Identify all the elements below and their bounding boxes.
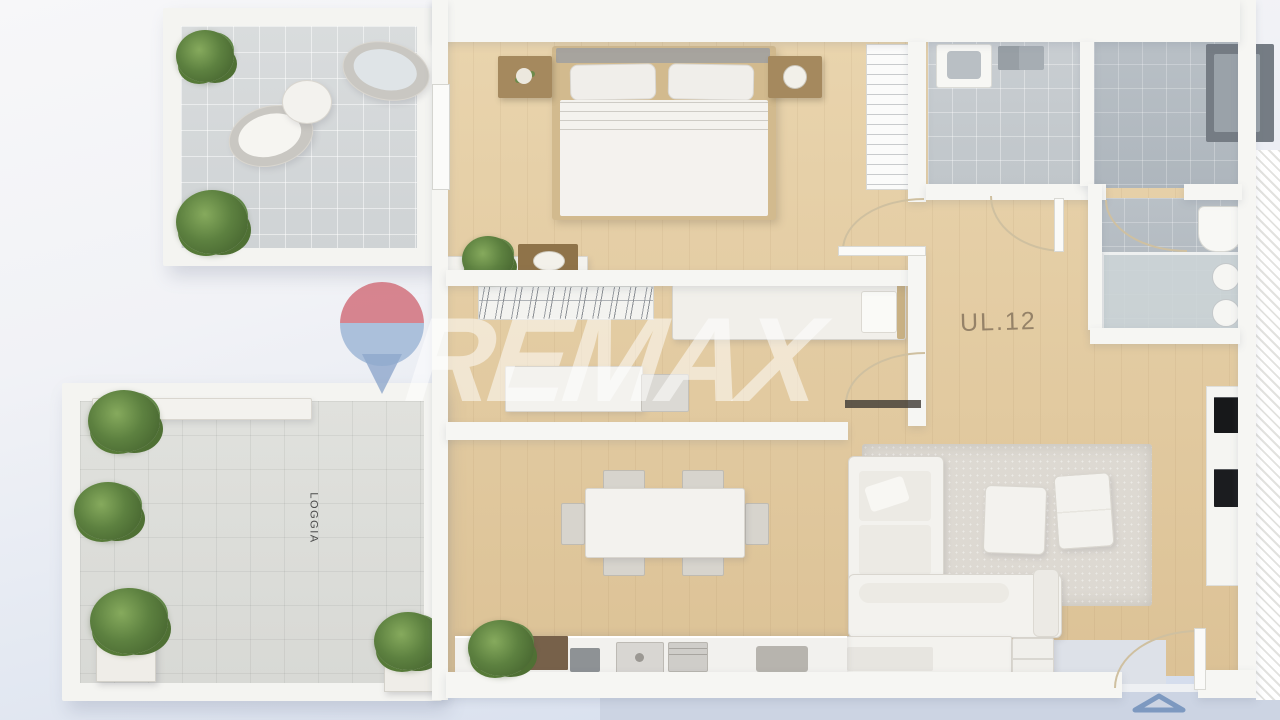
double-washbasin-vanity [1102,252,1242,335]
bedroom-window [432,84,450,190]
nightstand-right [768,56,822,98]
sofa-seat [848,574,1062,638]
sink-faucet [635,653,644,662]
hatched-boundary [1256,150,1280,700]
washbasin [936,44,992,88]
single-bed-pillow [861,291,897,333]
kitchen-sink [616,642,664,674]
kitchen-plant [468,620,534,676]
terrace-plant-top [176,30,234,82]
toilet-cistern [998,46,1044,70]
terrace-plant-bottom [176,190,248,254]
wall-bathroom-hall-stub [1184,184,1242,200]
dining-table [585,488,745,558]
hall-desk [641,374,689,412]
cooktop [668,642,708,672]
wardrobe-with-hangers [478,286,654,320]
loggia-plant-1 [88,390,160,452]
wall-top [432,0,1240,42]
kitchen-gray-box [570,648,600,672]
washbasin-bowl [947,51,981,79]
cutting-board [756,646,808,672]
bed-headboard [556,48,770,63]
wall-bottom-right-stub [1198,670,1256,698]
bed-pillow-left [570,63,657,100]
nightstand-decor-flower [516,68,532,84]
wall-right-outer [1238,0,1256,672]
sideboard-tray [847,647,933,671]
sofa-cushion-2 [859,525,931,575]
loggia-plant-3 [90,588,168,654]
nightstand-left [498,56,552,98]
bedroom-door-leaf [838,246,926,256]
sofa-armrest-right [1033,569,1059,637]
single-bed [672,284,906,340]
nightstand-lamp [783,65,807,89]
door-mat [845,400,921,408]
loggia-plant-2 [74,482,142,540]
pouf-1 [983,485,1047,555]
double-bed [552,46,776,220]
sofa-seat-cushion [859,583,1009,603]
console-bowl [533,251,565,271]
dining-chair-right [745,503,769,545]
wall-bedroom-right-upper [908,42,926,202]
loggia-label: LOGGIA [308,492,320,543]
wall-second-bath-left [1088,184,1102,330]
bed-pillow-right [668,63,755,100]
single-bed-frame-end [897,283,905,339]
bathroom-door-leaf [1054,198,1064,252]
wall-bedroom-divider [446,270,912,286]
vanity-sink-1 [1212,263,1240,291]
toilet-2 [1198,206,1242,252]
terrace-side-table [282,80,332,124]
balloon-envelope [340,282,424,366]
unit-label: UL.12 [960,307,1037,338]
wall-second-bath-bottom [1090,328,1240,344]
lounge-chair-cushion [350,44,421,96]
hall-sideboard [505,366,643,412]
pouf-2 [1053,472,1114,550]
dining-chair-left [561,503,585,545]
wall-middle-living-divider [446,422,848,440]
entrance-door-leaf [1194,628,1206,690]
vanity-sink-2 [1212,299,1240,327]
bed-duvet-folds [560,102,768,136]
entrance-direction-arrow [1130,690,1188,714]
wall-bottom [446,672,1122,698]
floor-plan-scene: LOGGIA UL.12 [0,0,1280,720]
wall-bath-shower-divider [1080,42,1094,186]
